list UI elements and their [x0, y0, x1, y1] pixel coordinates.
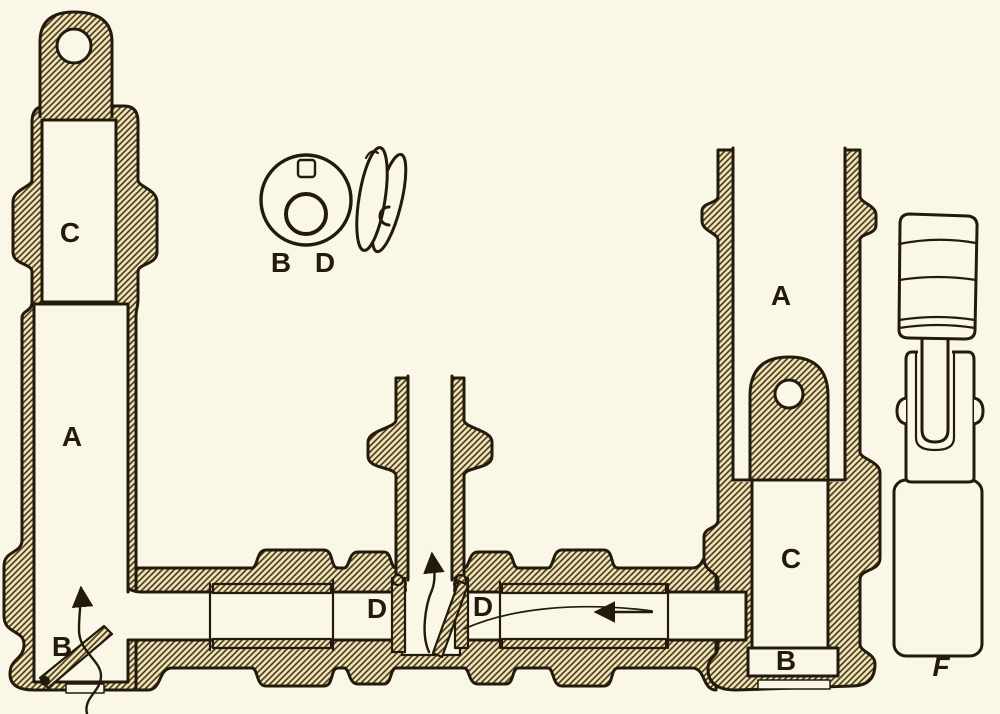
- disc-round-hole: [286, 194, 326, 234]
- tee-pocket: [402, 638, 460, 655]
- right-cap-slot: [758, 680, 830, 689]
- label-fitting: F: [932, 651, 950, 682]
- diagram-canvas: C A B B D D D A C B F: [0, 0, 1000, 714]
- inner-tube-bottom-right: [502, 639, 666, 648]
- fitting-pin-right: [974, 398, 983, 424]
- label-left-bore-main: A: [62, 421, 82, 452]
- fitting-f: [894, 214, 983, 656]
- label-tee-sleeve-right: D: [473, 591, 493, 622]
- left-deflector-hinge: [40, 676, 50, 686]
- fitting-pin-left: [897, 398, 906, 424]
- label-right-cap: B: [776, 645, 796, 676]
- figure-sectional-diagram: C A B B D D D A C B F: [0, 0, 1000, 714]
- inner-tube-top-left: [213, 584, 331, 593]
- fitting-stem: [922, 339, 948, 442]
- inner-tube-bottom-left: [213, 639, 331, 648]
- left-main-bore: [34, 304, 128, 682]
- tee-sleeve-end-left: [392, 578, 405, 652]
- right-lug: [750, 357, 828, 480]
- inner-tube-top-right: [502, 584, 666, 593]
- left-lug-eye: [57, 29, 91, 63]
- label-right-bore-lower: C: [781, 543, 801, 574]
- left-upper-bore: [42, 120, 116, 302]
- right-lug-eye: [775, 380, 803, 408]
- disc-square-hole: [298, 160, 315, 177]
- label-left-bore-upper: C: [60, 217, 80, 248]
- label-tee-sleeve-left: D: [367, 593, 387, 624]
- sleeve-hinge-left: [393, 575, 403, 585]
- label-right-bore-main: A: [771, 280, 791, 311]
- pipe-bore: [126, 592, 746, 640]
- tee-bore: [407, 376, 453, 594]
- label-left-inlet: B: [52, 631, 72, 662]
- label-disc-face: B D: [271, 247, 343, 278]
- fitting-body: [894, 480, 982, 656]
